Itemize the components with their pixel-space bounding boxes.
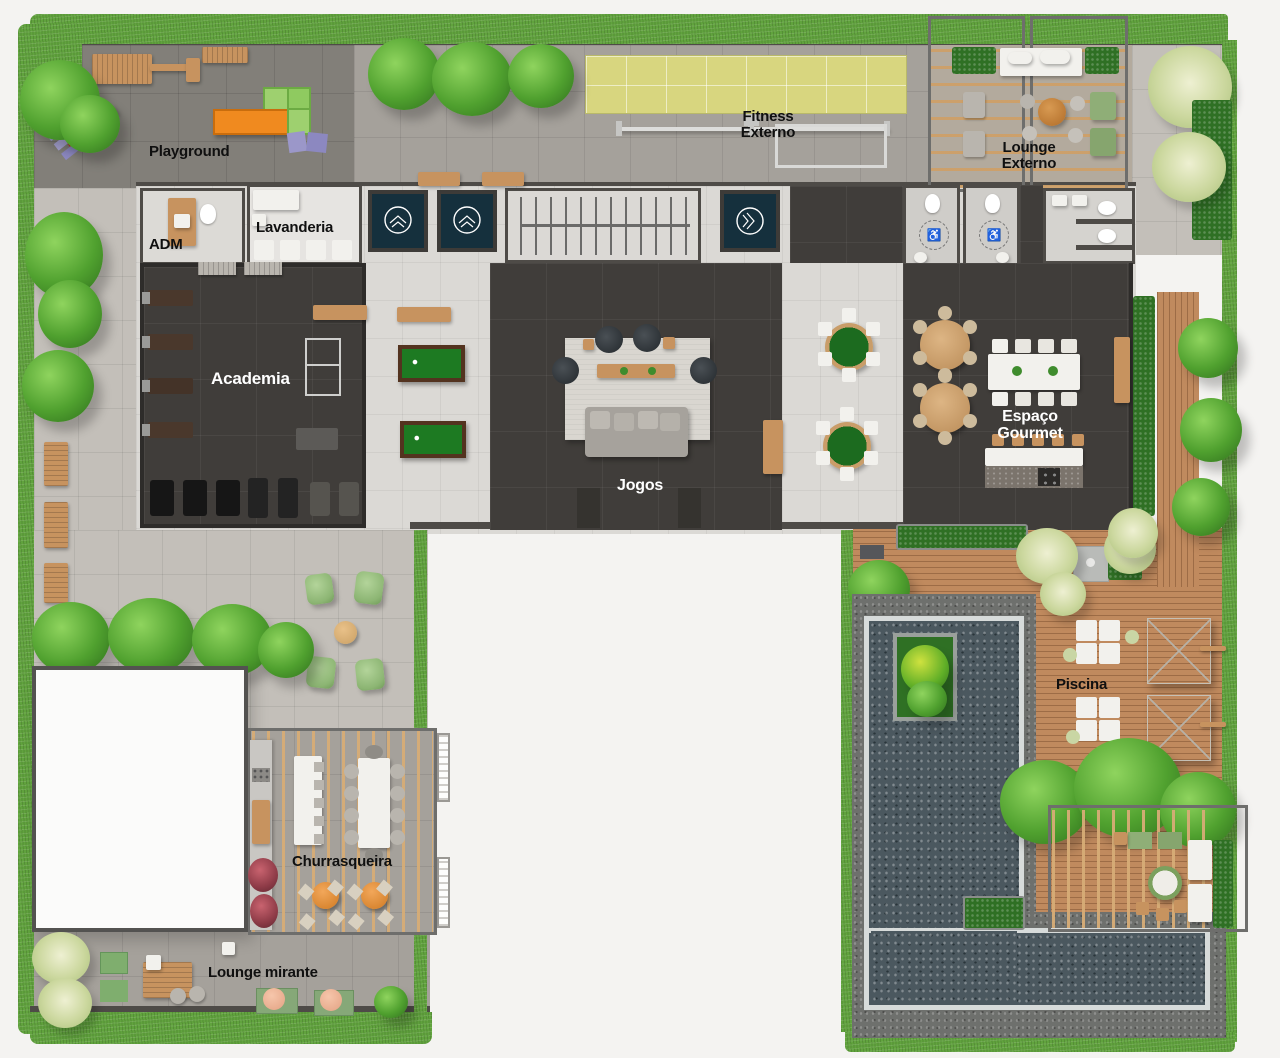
elevator-logo-icon bbox=[449, 203, 485, 239]
wheelchair-icon-circle: ♿ bbox=[919, 220, 949, 250]
outdoor-chair bbox=[963, 131, 985, 157]
red-plant bbox=[248, 858, 278, 892]
climbing-frame bbox=[92, 54, 152, 84]
restroom bbox=[1043, 188, 1135, 264]
climbing-frame-bar bbox=[150, 64, 190, 71]
bistro-table-pink bbox=[320, 989, 342, 1011]
palm-tree bbox=[1152, 132, 1226, 202]
side-table bbox=[583, 339, 594, 350]
tree bbox=[1172, 478, 1230, 536]
kitchen-counter bbox=[985, 448, 1083, 466]
dining-chairs-right bbox=[390, 764, 405, 779]
wheelchair-icon-circle: ♿ bbox=[979, 220, 1009, 250]
side-table-green bbox=[1125, 630, 1139, 644]
pullup-bar-post bbox=[616, 121, 622, 136]
gourmet-line1: Espaço bbox=[1002, 408, 1058, 425]
head-chair bbox=[365, 745, 383, 759]
sofa-cushions bbox=[590, 411, 610, 429]
weight-machine bbox=[296, 428, 338, 450]
outdoor-counter bbox=[1188, 840, 1212, 880]
tree bbox=[108, 598, 194, 674]
dumbbell-rack bbox=[198, 262, 236, 275]
louver-door bbox=[437, 733, 450, 802]
table-plant bbox=[1012, 366, 1022, 376]
deck-planter bbox=[963, 896, 1025, 930]
armchair bbox=[595, 326, 623, 353]
fitness-line2: Externo bbox=[741, 124, 795, 141]
stall-wall bbox=[1076, 245, 1132, 250]
side-table-green bbox=[1066, 730, 1080, 744]
lavanderia-label: Lavanderia bbox=[256, 219, 333, 236]
lounge-externo-line2: Externo bbox=[1002, 155, 1056, 172]
planter bbox=[952, 47, 996, 74]
game-table bbox=[823, 422, 871, 470]
game-chairs bbox=[842, 308, 856, 322]
toilet bbox=[985, 194, 1000, 213]
playground-label: Playground bbox=[149, 143, 230, 160]
washing-machines bbox=[254, 240, 274, 260]
elevator bbox=[368, 190, 428, 252]
sink bbox=[1052, 195, 1067, 206]
core-dark-corridor bbox=[790, 186, 903, 263]
sink bbox=[1072, 195, 1087, 206]
daybed-cushions bbox=[1076, 620, 1097, 641]
gourmet-line2: Gourmet bbox=[997, 425, 1062, 442]
tree bbox=[368, 38, 440, 110]
toilet bbox=[1098, 201, 1116, 215]
lounger-green bbox=[1090, 128, 1116, 156]
treadmills bbox=[148, 290, 193, 306]
play-slide-orange bbox=[213, 109, 291, 135]
bench bbox=[44, 502, 68, 548]
billiard-table bbox=[400, 421, 466, 458]
treadmill-consoles bbox=[142, 292, 150, 304]
accessible-wc: ♿ bbox=[963, 185, 1020, 268]
pouf bbox=[304, 572, 335, 605]
elevator bbox=[720, 190, 780, 252]
louver-door bbox=[437, 857, 450, 928]
tree bbox=[432, 42, 512, 116]
palm-tree bbox=[38, 978, 92, 1028]
pouf bbox=[353, 570, 385, 605]
side-table-green bbox=[1063, 648, 1077, 662]
planter-strip bbox=[896, 524, 1028, 550]
lounge-mirante-label: Lounge mirante bbox=[208, 964, 318, 981]
game-table bbox=[825, 323, 873, 371]
round-stool bbox=[146, 955, 161, 970]
bench bbox=[763, 420, 783, 474]
lounger-green bbox=[1128, 832, 1152, 849]
round-stool bbox=[222, 942, 235, 955]
armchair bbox=[690, 357, 717, 384]
gym-machines-dark bbox=[248, 478, 268, 518]
bistro-table-orange bbox=[361, 882, 388, 909]
adm-laptop bbox=[174, 214, 190, 228]
pool-water-seam bbox=[871, 931, 1017, 1005]
outdoor-counter bbox=[1188, 884, 1212, 922]
tree bbox=[508, 44, 574, 108]
play-mat-lilac bbox=[306, 132, 328, 153]
stair-landing-rail bbox=[520, 224, 690, 227]
dumbbell-rack bbox=[244, 262, 282, 275]
sink bbox=[996, 252, 1009, 263]
pouf bbox=[354, 658, 385, 692]
fitness-mat bbox=[585, 55, 907, 114]
bench bbox=[397, 307, 451, 322]
bistro-table-pink bbox=[263, 988, 285, 1010]
lounger-green bbox=[1090, 92, 1116, 120]
round-dining-table bbox=[920, 383, 970, 433]
bbq-grill bbox=[252, 768, 270, 782]
bench bbox=[44, 442, 68, 486]
jogos-label: Jogos bbox=[617, 477, 663, 495]
sink bbox=[914, 252, 927, 263]
academia-label: Academia bbox=[211, 369, 290, 389]
lounge-externo-label: Lounge Externo bbox=[996, 140, 1062, 172]
tree bbox=[60, 95, 120, 153]
tree bbox=[1178, 318, 1238, 378]
sofa-cushion bbox=[1040, 50, 1070, 64]
billiard-table bbox=[398, 345, 465, 382]
tree bbox=[22, 350, 94, 422]
elevator-logo-icon bbox=[732, 203, 768, 239]
shower-drain bbox=[1086, 558, 1095, 567]
lower-roof bbox=[32, 666, 248, 932]
plant-pot bbox=[1114, 832, 1127, 845]
pool-planter bbox=[893, 633, 957, 721]
palm-tree bbox=[1040, 572, 1086, 616]
bench bbox=[482, 172, 524, 186]
daybed-cushions bbox=[1076, 697, 1097, 718]
climbing-frame-post bbox=[186, 58, 200, 82]
fitness-line1: Fitness bbox=[742, 108, 793, 125]
door-pillar bbox=[678, 488, 701, 528]
umbrella-arm bbox=[1200, 722, 1226, 727]
squat-rack-bar bbox=[305, 364, 341, 366]
cabana-umbrella bbox=[1147, 618, 1211, 684]
dining-chairs-bottom bbox=[992, 392, 1008, 406]
dining-chairs-left bbox=[344, 764, 359, 779]
door-pillar bbox=[577, 488, 600, 528]
stall-wall bbox=[1076, 219, 1132, 224]
elevator bbox=[437, 190, 497, 252]
side-table bbox=[663, 337, 675, 349]
plant bbox=[374, 986, 408, 1018]
tree bbox=[38, 280, 102, 348]
palm-tree bbox=[32, 932, 90, 984]
elevator-logo-icon bbox=[380, 203, 416, 239]
palm-tree bbox=[1108, 508, 1158, 558]
green-mat bbox=[100, 952, 128, 974]
piscina-label: Piscina bbox=[1056, 676, 1107, 693]
laundry-counter bbox=[253, 190, 299, 210]
floor-plan-canvas: Playground Fitness Externo Lounge Extern… bbox=[0, 0, 1280, 1058]
grass-border-bottom-left-wing bbox=[30, 1012, 432, 1044]
exercise-bikes bbox=[150, 480, 174, 516]
play-mat-lilac bbox=[287, 131, 308, 153]
wood-shelf bbox=[313, 305, 367, 320]
armchair bbox=[633, 324, 661, 352]
table-plant bbox=[620, 367, 628, 375]
dining-table bbox=[358, 758, 390, 848]
dining-chairs-top bbox=[992, 339, 1008, 353]
wheelchair-icon: ♿ bbox=[927, 228, 942, 242]
round-table-chairs bbox=[938, 306, 952, 320]
plant bbox=[907, 681, 947, 717]
squat-rack bbox=[305, 338, 341, 396]
lounge-externo-line1: Lounge bbox=[1003, 139, 1056, 156]
table-chair bbox=[1020, 94, 1035, 109]
round-table-wood bbox=[334, 621, 357, 644]
table-plant bbox=[648, 367, 656, 375]
fitness-externo-label: Fitness Externo bbox=[733, 109, 803, 141]
planter bbox=[1085, 47, 1119, 74]
table-plant bbox=[1048, 366, 1058, 376]
staircase bbox=[505, 188, 701, 263]
wheelchair-icon: ♿ bbox=[987, 228, 1002, 242]
game-chairs bbox=[840, 407, 854, 421]
tree bbox=[1180, 398, 1242, 462]
core-dark-gap bbox=[1020, 185, 1043, 265]
umbrella-arm bbox=[1200, 646, 1226, 651]
round-stool bbox=[189, 986, 205, 1002]
round-table-wood bbox=[1038, 98, 1066, 126]
bbq-cabinet bbox=[252, 800, 270, 844]
stools bbox=[1136, 902, 1149, 915]
bench bbox=[202, 47, 248, 63]
toilet bbox=[200, 204, 216, 224]
sofa-cushion bbox=[1008, 52, 1032, 64]
hedge-column bbox=[1133, 296, 1155, 516]
kitchen-island-granite bbox=[985, 466, 1083, 488]
toilet bbox=[1098, 229, 1116, 243]
gourmet-label: Espaço Gourmet bbox=[995, 409, 1065, 443]
gym-machines-gray bbox=[310, 482, 330, 516]
planter-pads bbox=[860, 545, 884, 559]
cooktop bbox=[1038, 468, 1060, 486]
round-dining-table bbox=[920, 320, 970, 370]
toilet bbox=[925, 194, 940, 213]
round-table bbox=[1148, 866, 1182, 900]
accessible-wc: ♿ bbox=[903, 185, 960, 268]
dining-table bbox=[988, 354, 1080, 390]
round-table-chairs bbox=[938, 369, 952, 383]
tree bbox=[32, 602, 110, 674]
outdoor-chair bbox=[963, 92, 985, 118]
red-plant bbox=[250, 894, 278, 928]
armchair bbox=[552, 357, 579, 384]
bench bbox=[44, 563, 68, 603]
hedge bbox=[1213, 840, 1233, 928]
adm-label: ADM bbox=[149, 236, 183, 253]
sideboard bbox=[1114, 337, 1130, 403]
churrasqueira-label: Churrasqueira bbox=[292, 853, 392, 870]
bar-stools bbox=[314, 762, 324, 772]
bistro-table-orange bbox=[312, 882, 339, 909]
round-stool bbox=[170, 988, 186, 1004]
tree bbox=[258, 622, 314, 678]
coffee-table bbox=[597, 364, 675, 378]
bench bbox=[418, 172, 460, 186]
